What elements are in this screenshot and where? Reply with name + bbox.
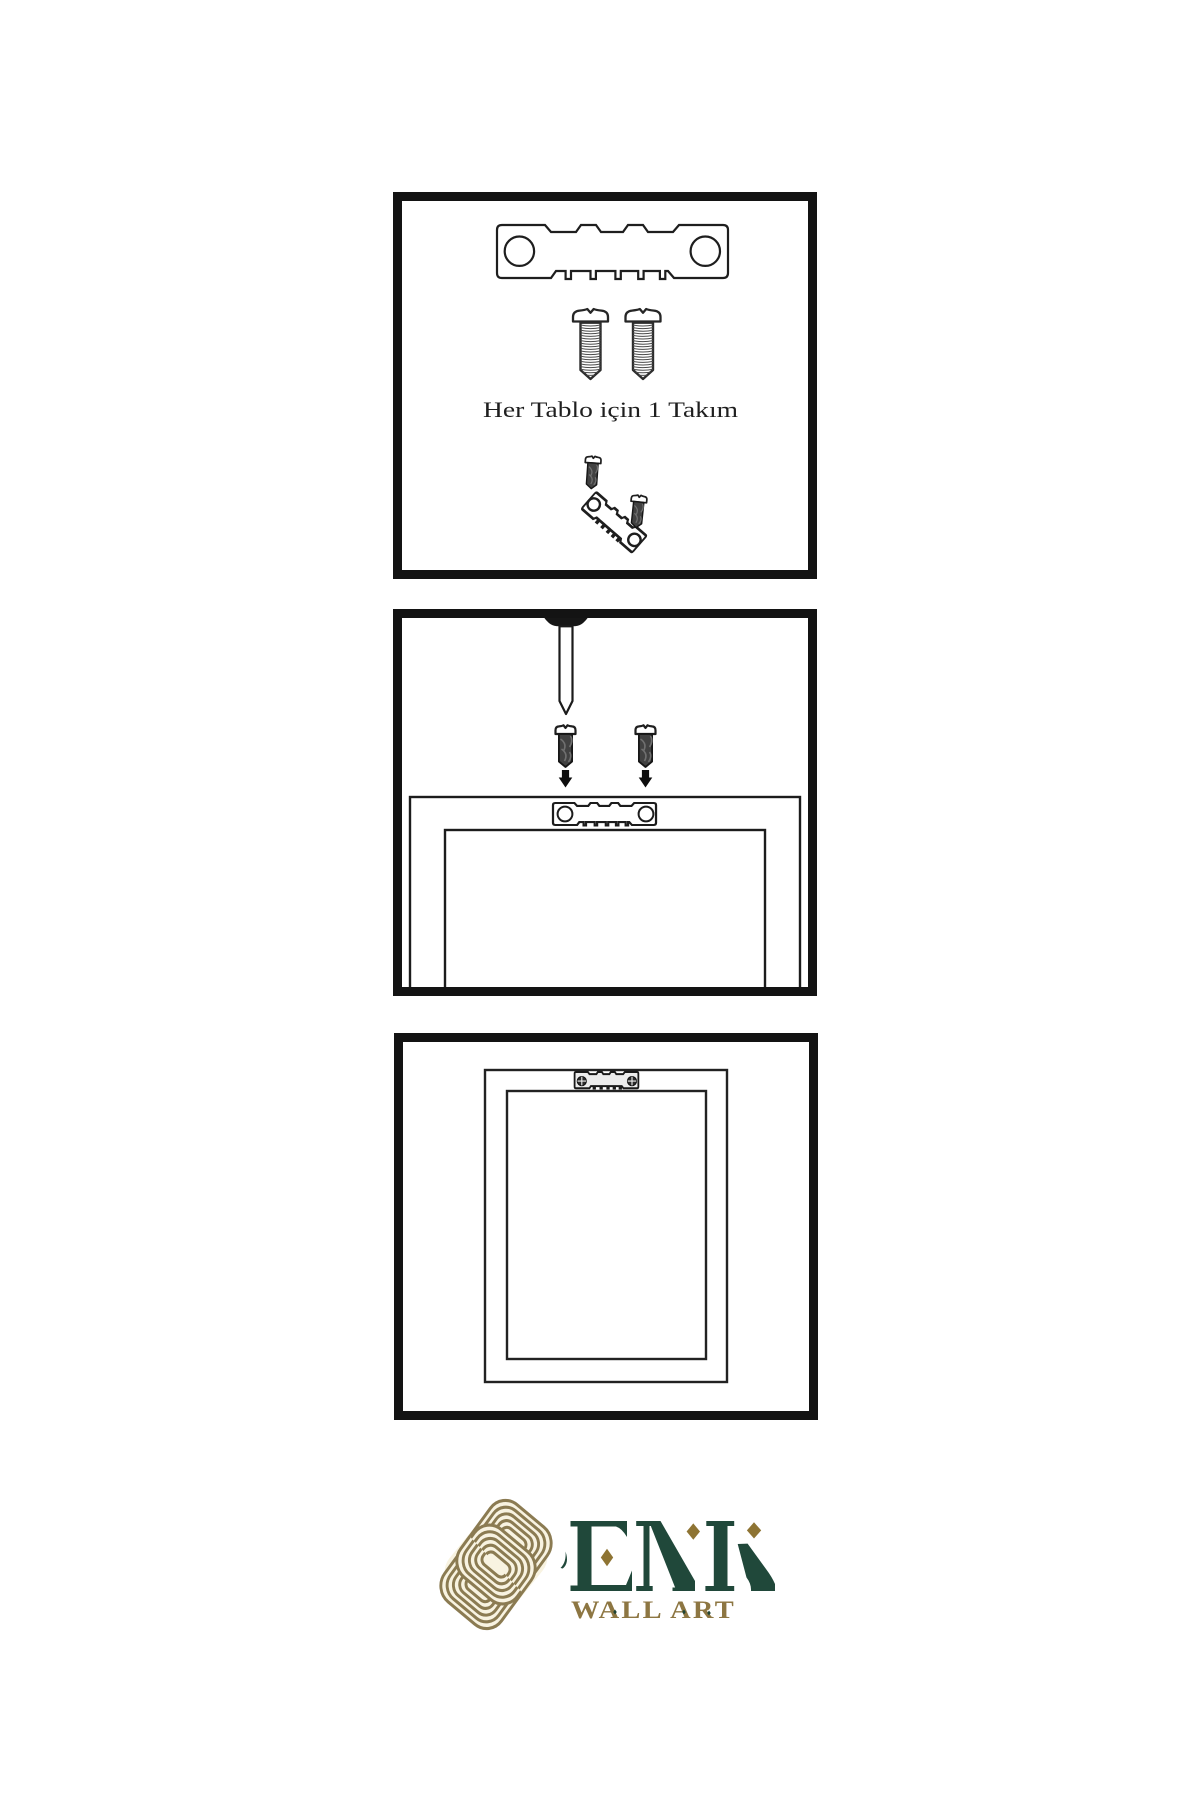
- svg-text:Her Tablo için 1 Takım: Her Tablo için 1 Takım: [483, 397, 739, 422]
- svg-text:WALL ART: WALL ART: [571, 1597, 736, 1624]
